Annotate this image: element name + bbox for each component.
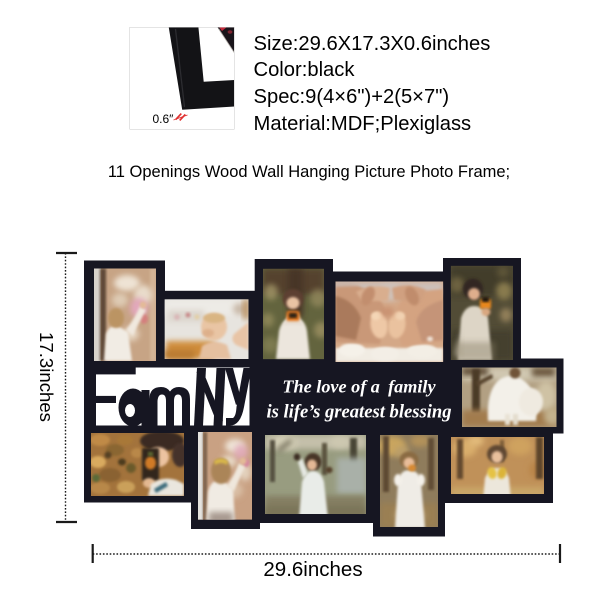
svg-text:The love of a family: The love of a family bbox=[282, 377, 436, 397]
svg-text:is life’s greatest blessing: is life’s greatest blessing bbox=[266, 402, 451, 423]
